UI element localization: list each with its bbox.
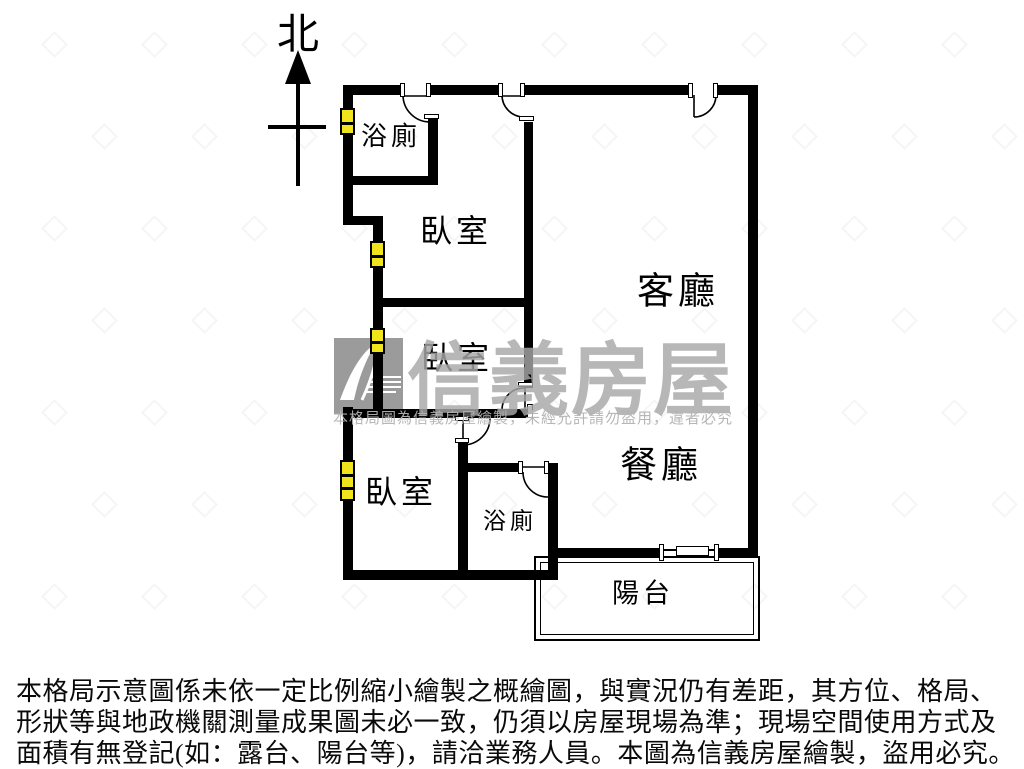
room-label-bathroom-top: 浴廁 bbox=[361, 124, 421, 150]
bedroom1-door-arc bbox=[502, 95, 524, 117]
window-3 bbox=[370, 328, 385, 354]
bath2-door-arc bbox=[523, 472, 548, 497]
wall-bath2-right-wall bbox=[548, 463, 558, 580]
wall-bath1-right-wall bbox=[428, 118, 438, 185]
door-jamb bbox=[714, 544, 719, 561]
entrance-door-arc bbox=[694, 95, 716, 117]
window-pane-divider bbox=[372, 255, 383, 258]
room-label-bathroom-bottom: 浴廁 bbox=[483, 510, 537, 533]
watermark-notice: 本格局圖為信義房屋繪製，未經允許請勿盜用，違者必究 bbox=[333, 407, 733, 428]
disclaimer-line: 形狀等與地政機關測量成果圖未必一致，仍須以房屋現場為準；現場空間使用方式及 bbox=[16, 707, 1016, 738]
door-jamb bbox=[400, 83, 405, 97]
wall-dining-bottom-a bbox=[548, 548, 664, 558]
wall-top-wall-c bbox=[524, 85, 690, 95]
room-label-living-room: 客廳 bbox=[637, 274, 719, 311]
door-jamb bbox=[455, 438, 469, 443]
window-pane-divider bbox=[342, 122, 353, 125]
window-pane-divider bbox=[372, 341, 383, 344]
door-jamb bbox=[688, 83, 693, 98]
door-jamb bbox=[544, 461, 549, 474]
window-4 bbox=[340, 460, 355, 501]
wall-top-wall-b bbox=[430, 85, 502, 95]
wall-right-wall bbox=[748, 85, 758, 558]
wall-bedroom-divider bbox=[375, 298, 533, 307]
wall-left-wall-a bbox=[343, 85, 353, 225]
wall-bath1-bottom-wall bbox=[343, 176, 438, 185]
floorplan-page: 北 信義房屋 本格局圖為信義房屋繪製，未經允許請勿盜用，違者必究 浴廁臥室客廳臥… bbox=[0, 0, 1024, 768]
room-label-bedroom-1: 臥室 bbox=[420, 215, 492, 247]
window-pane-divider bbox=[342, 487, 353, 490]
window-pane-divider bbox=[342, 474, 353, 477]
door-jamb bbox=[520, 83, 525, 97]
door-jamb bbox=[713, 83, 718, 98]
disclaimer-line: 本格局示意圖係未依一定比例縮小繪製之概繪圖，與實況仍有差距，其方位、格局、 bbox=[16, 676, 1016, 707]
window-1 bbox=[340, 108, 355, 135]
sliding-door-panel bbox=[676, 546, 709, 556]
door-jamb bbox=[426, 83, 431, 97]
door-jamb bbox=[518, 461, 523, 474]
north-label: 北 bbox=[277, 1, 319, 62]
wall-bath2-top-wall bbox=[463, 463, 523, 472]
disclaimer-line: 面積有無登記(如：露台、陽台等)，請洽業務人員。本圖為信義房屋繪製，盜用必究。 bbox=[16, 738, 1016, 769]
disclaimer-text: 本格局示意圖係未依一定比例縮小繪製之概繪圖，與實況仍有差距，其方位、格局、 形狀… bbox=[16, 676, 1016, 769]
door-jamb bbox=[424, 114, 439, 119]
door-jamb bbox=[519, 116, 534, 121]
wall-unit-bottom-wall bbox=[343, 570, 558, 580]
door-jamb bbox=[659, 544, 664, 561]
north-arrow-shaft bbox=[296, 76, 300, 186]
room-label-balcony: 陽台 bbox=[612, 581, 674, 608]
north-arrow-crossbar bbox=[268, 125, 326, 129]
wall-bath2-left-wall bbox=[458, 443, 468, 580]
door-jamb bbox=[498, 83, 503, 97]
room-label-bedroom-3: 臥室 bbox=[365, 476, 437, 508]
room-label-dining-room: 餐廳 bbox=[620, 448, 702, 485]
window-2 bbox=[370, 241, 385, 268]
